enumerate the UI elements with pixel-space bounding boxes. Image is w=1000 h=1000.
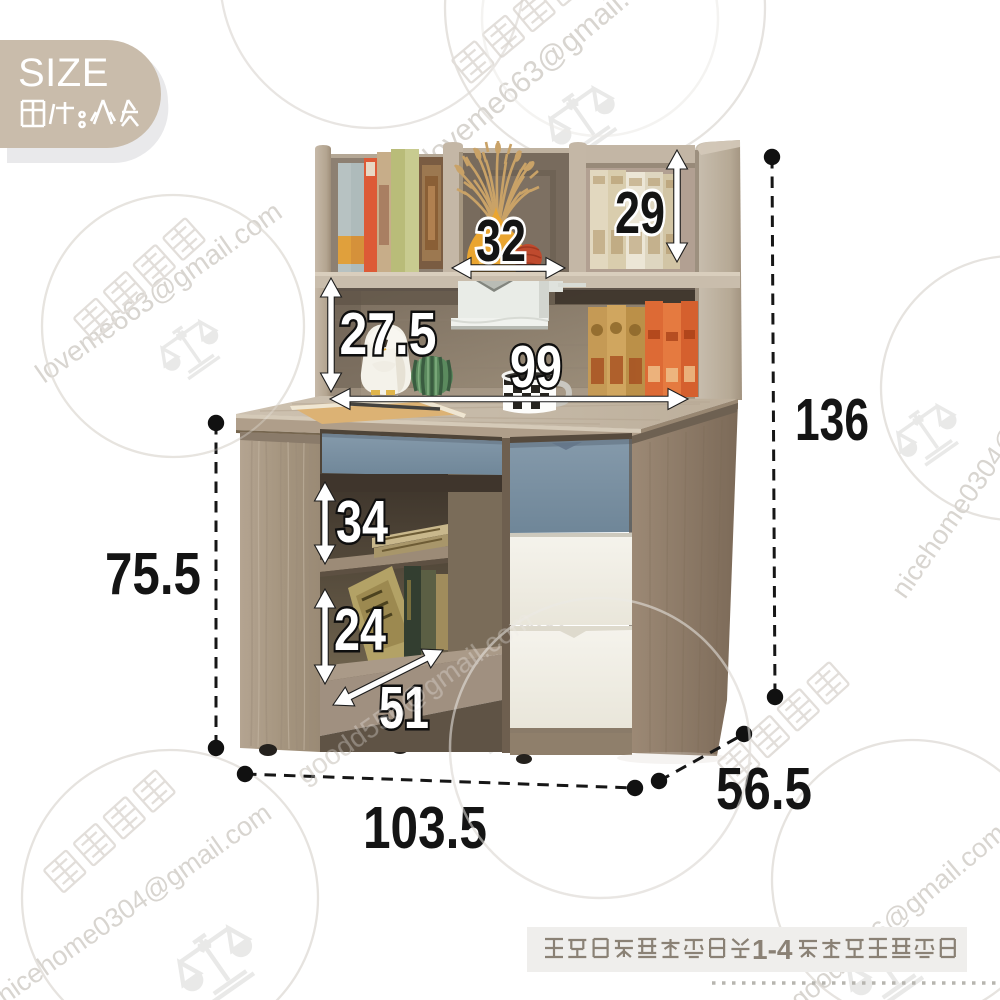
svg-text:136: 136 xyxy=(795,387,869,453)
svg-text:1-4: 1-4 xyxy=(752,934,793,965)
svg-text:27.5: 27.5 xyxy=(340,301,437,367)
svg-text:32: 32 xyxy=(476,208,526,274)
svg-text:24: 24 xyxy=(334,597,386,663)
svg-text:75.5: 75.5 xyxy=(105,541,201,607)
svg-text:99: 99 xyxy=(510,334,562,400)
svg-text:SIZE: SIZE xyxy=(18,51,109,95)
svg-text:29: 29 xyxy=(615,180,665,246)
svg-text:34: 34 xyxy=(336,489,388,555)
svg-text:56.5: 56.5 xyxy=(716,756,812,822)
svg-text:103.5: 103.5 xyxy=(363,795,487,861)
